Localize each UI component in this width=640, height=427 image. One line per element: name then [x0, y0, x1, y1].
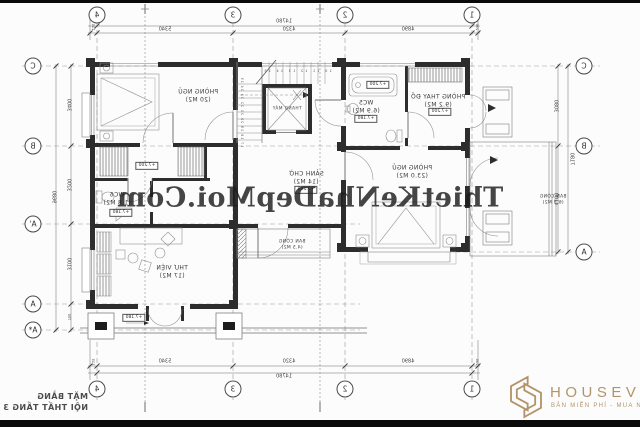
room-label-balcony-right: BAN CÔNG(6.5 M2) [540, 194, 567, 205]
room-label-bedroom-tl: PHÒNG NGỦ(20 M2) [178, 89, 218, 104]
title-line2: NỘI THẤT TẦNG 3 [14, 403, 88, 414]
grid-bubble-left-c: C [25, 58, 42, 75]
stair-numbers-lower: 17 18 19 20 21 22 23 24 25 [240, 77, 244, 148]
watermark-text: ThietKeNhaDepMoi.Com [117, 183, 504, 214]
dim-bottom-edge-left: 115 [90, 359, 94, 366]
grid-bubble-top-1: 1 [464, 7, 481, 24]
grid-bubble-left-a1: A' [25, 216, 42, 233]
wardrobe-dressing [408, 68, 462, 82]
dim-left-seg4: 750 [66, 314, 70, 321]
dim-right-seg1: 3080 [553, 100, 558, 113]
grid-bubble-bottom-4: 4 [89, 381, 106, 398]
grid-bubble-left-b: B [25, 138, 42, 155]
houseviet-logo-name: HOUSEVIET [550, 384, 640, 401]
grid-bubble-right-c: C [576, 58, 593, 75]
houseviet-logo-tagline: BẢN MIỄN PHÍ - MUA NHƯ Ý [551, 403, 640, 409]
dim-bottom-seg3: 4890 [402, 360, 415, 365]
room-label-wc5: WC5(6.9 M2) [352, 100, 380, 115]
grid-bubble-left-a2: A* [25, 322, 42, 339]
houseviet-logo-mark [506, 374, 546, 420]
title-block: MẶT BẰNG NỘI THẤT TẦNG 3 [14, 392, 88, 414]
stair-numbers-upper: 10 11 12 13 14 15 [262, 69, 332, 73]
houseviet-logo: HOUSEVIET BẢN MIỄN PHÍ - MUA NHƯ Ý [506, 374, 636, 420]
room-label-balcony-center: BAN CÔNG(4.5 M2) [279, 239, 306, 250]
level-library: +7.180 [123, 314, 146, 322]
dim-left-seg1: 3400 [66, 99, 71, 112]
dim-top-seg2: 4320 [283, 28, 296, 33]
grid-bubble-left-a: A [25, 296, 42, 313]
dim-left-seg3: 3100 [66, 258, 71, 271]
grid-bubble-top-2: 2 [337, 7, 354, 24]
level-dressing: +7.200 [429, 108, 452, 116]
grid-bubble-bottom-1: 1 [464, 381, 481, 398]
dim-right-total: 7180 [569, 153, 574, 166]
grid-bubble-top-3: 3 [225, 7, 242, 24]
dim-top-seg3: 4890 [402, 28, 415, 33]
title-line1: MẶT BẰNG [14, 392, 88, 403]
balcony-right [470, 87, 556, 256]
dim-bottom-edge-right: 230 [474, 359, 478, 366]
room-label-library: THƯ VIỆN(17 M2) [156, 265, 188, 280]
floor-plan-sheet: 4 3 2 1 4 3 2 1 C B A' A A* C B A 5340 4… [0, 0, 640, 427]
level-wc5-tub: +7.200 [367, 81, 390, 89]
dim-top-edge-right: 230 [474, 24, 478, 31]
grid-bubble-bottom-3: 3 [225, 381, 242, 398]
dim-bottom-total: 14780 [276, 375, 292, 380]
level-wc5: +7.180 [355, 115, 378, 123]
room-label-dressing: PHÒNG THAY ĐỒ(9.2 M2) [411, 94, 466, 109]
grid-bubble-bottom-2: 2 [337, 381, 354, 398]
bed-top-left [97, 63, 159, 141]
dim-left-seg2: 3200 [66, 179, 71, 192]
grid-bubble-top-4: 4 [89, 7, 106, 24]
level-closet: +7.200 [136, 162, 159, 170]
dim-bottom-seg2: 4320 [283, 360, 296, 365]
dim-top-edge-left: 115 [90, 24, 94, 31]
room-label-bedroom-r: PHÒNG NGỦ(23.0 M2) [392, 165, 432, 180]
dim-top-seg1: 5340 [159, 28, 172, 33]
dim-left-total: 9680 [51, 191, 56, 204]
grid-bubble-right-b: B [576, 138, 593, 155]
grid-bubble-right-a: A [576, 244, 593, 261]
dim-top-total: 14780 [276, 20, 292, 25]
room-label-elevator: THANG MÁY [272, 107, 301, 112]
dim-bottom-seg1: 5340 [159, 360, 172, 365]
plan-linework [0, 0, 640, 427]
